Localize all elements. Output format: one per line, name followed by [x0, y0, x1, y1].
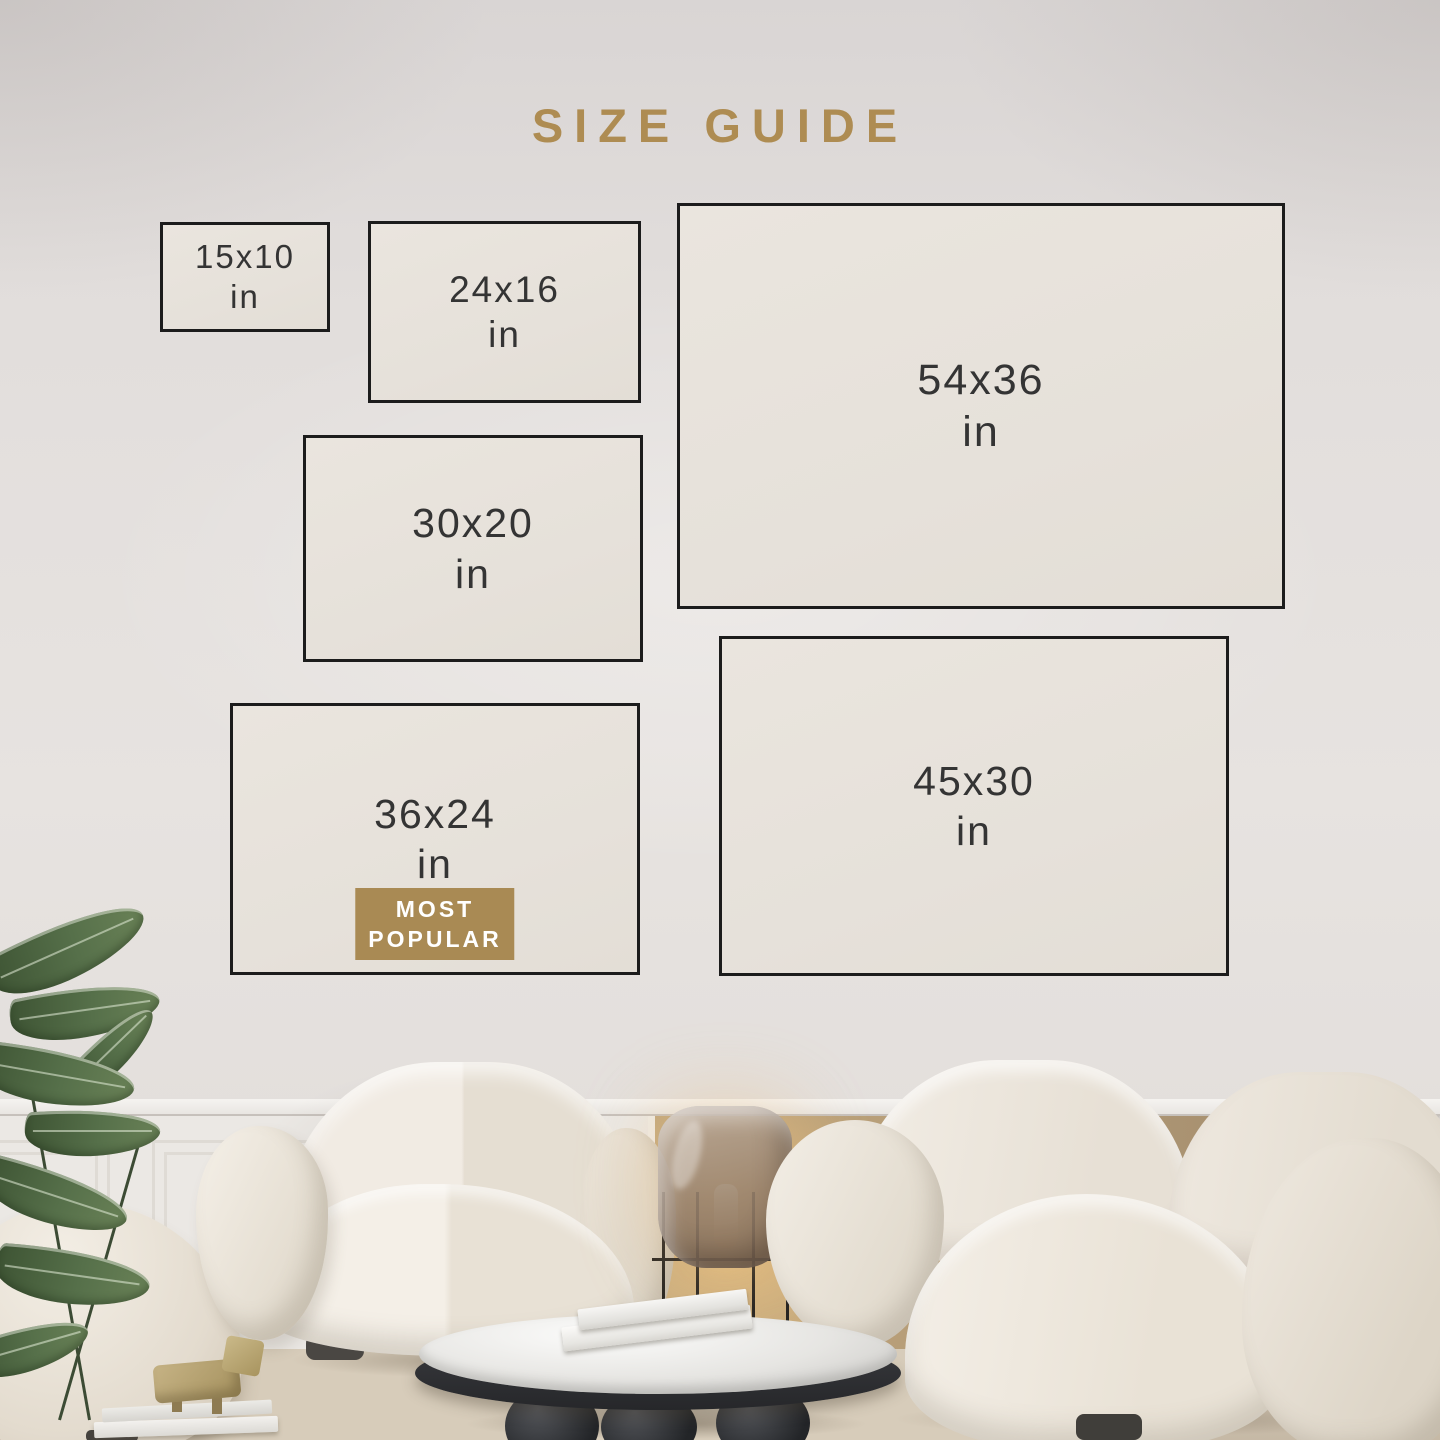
size-label: 54x36	[917, 354, 1044, 406]
size-option-45x30: 45x30 in	[719, 636, 1229, 976]
size-guide-poster: SIZE GUIDE 15x10 in 24x16 in 30x20 in 54…	[0, 0, 1440, 1440]
size-unit: in	[230, 277, 260, 317]
size-label: 45x30	[913, 756, 1035, 806]
wooden-toy-head	[221, 1335, 265, 1377]
size-unit: in	[962, 406, 999, 458]
size-label: 36x24	[374, 789, 496, 839]
badge-line-1: MOST	[368, 894, 501, 924]
size-option-54x36: 54x36 in	[677, 203, 1285, 609]
size-unit: in	[455, 549, 491, 599]
badge-line-2: POPULAR	[368, 924, 501, 954]
wooden-toy-leg	[212, 1398, 222, 1414]
size-unit: in	[417, 839, 453, 889]
size-unit: in	[488, 312, 521, 357]
size-option-36x24: 36x24 in MOST POPULAR	[230, 703, 640, 975]
sofa-foot	[1076, 1414, 1142, 1440]
size-option-24x16: 24x16 in	[368, 221, 641, 403]
size-label: 30x20	[412, 498, 534, 548]
size-option-15x10: 15x10 in	[160, 222, 330, 332]
size-unit: in	[956, 806, 992, 856]
page-title: SIZE GUIDE	[0, 98, 1440, 153]
size-label: 24x16	[449, 267, 560, 312]
size-label: 15x10	[195, 237, 295, 277]
size-option-30x20: 30x20 in	[303, 435, 643, 662]
most-popular-badge: MOST POPULAR	[355, 888, 514, 960]
